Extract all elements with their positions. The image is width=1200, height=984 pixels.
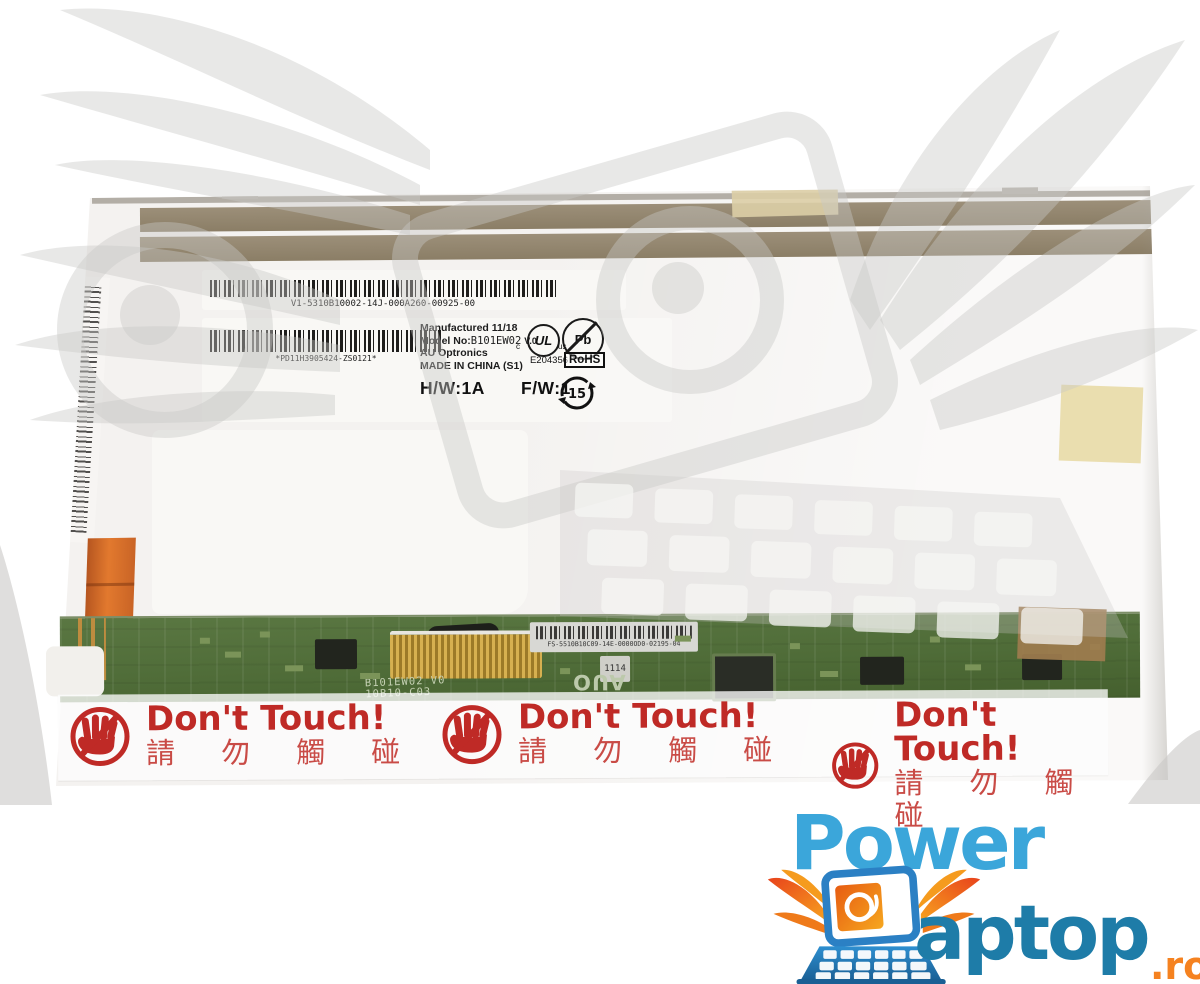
sticker-text: Don't Touch! 請 勿 觸 碰: [518, 699, 792, 768]
product-photo: V1-5310B10002-14J-000A260-00925-00 *PD11…: [0, 0, 1200, 984]
hw-value: H/W:1A: [420, 378, 484, 398]
hw-fw-line: H/W:1A F/W:1: [420, 378, 571, 399]
epup-recycle-icon: 15: [558, 374, 596, 412]
model-label: Model No:: [420, 335, 471, 347]
sticker-text: Don't Touch! 請 勿 觸 碰: [146, 701, 420, 770]
driver-pcb: FS-5510B10C09-14E-0000OD0-02195-04 1114 …: [60, 612, 1140, 703]
no-touch-hand-icon: [68, 704, 132, 768]
dont-touch-title: Don't Touch!: [146, 701, 419, 736]
brown-tape-pcb: [1017, 607, 1107, 662]
smd-pad: [790, 643, 800, 649]
logo-word-aptop: aptop: [914, 888, 1148, 977]
metal-clip-tab: [1002, 185, 1038, 194]
panel-plastic-tab: [46, 646, 104, 696]
dont-touch-chinese: 請 勿 觸 碰: [518, 735, 791, 768]
dont-touch-sticker: Don't Touch! 請 勿 觸 碰: [68, 701, 420, 771]
ic-chip: [315, 639, 357, 669]
smd-pad: [260, 631, 270, 637]
dont-touch-sticker: Don't Touch! 請 勿 觸 碰: [440, 699, 792, 769]
auo-logo: AUO: [572, 670, 626, 694]
serial-barcode-mid-text: *PD11H3905424-ZS0121*: [210, 354, 442, 363]
metal-clip-tab: [222, 190, 258, 199]
smd-pad: [200, 638, 210, 644]
yellow-tape-right: [1059, 385, 1144, 464]
smd-pad: [360, 673, 380, 679]
model-value: B101EW02: [471, 335, 522, 347]
blank-white-sheet: [152, 430, 528, 614]
smd-pad: [965, 664, 981, 670]
serial-barcode-top: [210, 280, 556, 297]
smd-pad: [930, 637, 940, 643]
smd-pad: [225, 652, 241, 658]
panel-right-edge: [1142, 184, 1168, 788]
smd-pad: [820, 671, 838, 677]
dont-touch-title: Don't Touch!: [894, 697, 1108, 766]
dont-touch-title: Don't Touch!: [518, 699, 791, 734]
manufactured-line: Manufactured 11/18: [420, 322, 537, 335]
warning-sticker-band: Don't Touch! 請 勿 觸 碰 Don't Touch! 請 勿 觸 …: [58, 689, 1108, 780]
no-touch-hand-icon: [440, 702, 504, 766]
ul-mark-icon: UL: [527, 324, 560, 357]
rohs-mark: RoHS: [564, 352, 605, 368]
beige-tape-top: [732, 185, 839, 218]
ul-c-text: c: [516, 342, 520, 351]
smd-pad: [285, 665, 303, 671]
pcb-barcode-text: FS-5510B10C09-14E-0000OD0-02195-04: [530, 640, 698, 649]
pcb-barcode: [536, 626, 692, 640]
logo-tld-ro: .ro: [1150, 944, 1200, 984]
dont-touch-chinese: 請 勿 觸 碰: [146, 737, 419, 770]
no-touch-hand-icon: [830, 733, 880, 797]
serial-barcode-top-text: V1-5310B10002-14J-000A260-00925-00: [210, 299, 556, 309]
gold-connector: [390, 630, 542, 679]
ic-chip: [860, 657, 904, 685]
smd-pad: [675, 636, 691, 642]
pcb-barcode-label: FS-5510B10C09-14E-0000OD0-02195-04: [530, 622, 698, 653]
powerlaptop-logo: Power: [738, 802, 1200, 984]
smd-pad: [560, 668, 570, 674]
serial-barcode-mid: [210, 330, 442, 352]
epup-years-text: 15: [568, 387, 586, 402]
